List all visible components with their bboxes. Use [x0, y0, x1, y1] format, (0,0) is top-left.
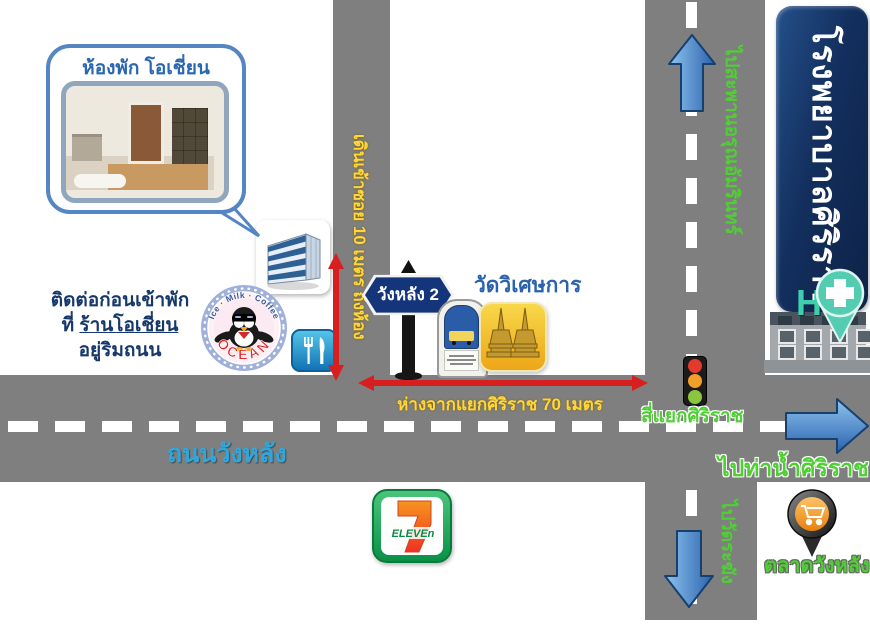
intersection-label: สี่แยกศิริราช [641, 401, 744, 431]
road-name-label: ถนนวังหลัง [167, 434, 287, 474]
street-sign-pole [402, 312, 415, 376]
directions-map: ห้องพัก โอเชี่ยน ติดต่อก่อนเข้าพัก ที่ ร… [0, 0, 870, 641]
photo-shelf [72, 134, 102, 161]
contact-note: ติดต่อก่อนเข้าพัก ที่ ร้านโอเชี่ยน อยู่ร… [38, 288, 202, 363]
speech-bubble: ห้องพัก โอเชี่ยน [46, 44, 246, 214]
distance-arrow-vertical [325, 252, 347, 382]
to-bridge-label: ไปสะพานอรุณอัมรินทร์ [720, 46, 741, 235]
up-arrow-icon [668, 34, 716, 112]
street-sign-finial [401, 260, 416, 273]
distance-label: ห่างจากแยกศิริราช 70 เมตร [370, 391, 630, 418]
shop-name: ร้านโอเชี่ยน [79, 315, 178, 336]
bus-stop-plaque [444, 350, 479, 371]
temple-icon [479, 302, 547, 372]
room-photo [61, 81, 229, 203]
photo-lockers [172, 108, 208, 164]
bus-stop-arch [444, 305, 479, 349]
down-arrow-icon [662, 528, 716, 608]
contact-line3: อยู่ริมถนน [38, 338, 202, 363]
contact-line1: ติดต่อก่อนเข้าพัก [38, 288, 202, 313]
to-pier-label: ไปท่าน้ำศิริราช [718, 451, 869, 487]
bus-pictogram [449, 331, 474, 341]
ocean-logo: Ice · Milk · Coffee OCEAN [199, 282, 289, 374]
room-title: ห้องพัก โอเชี่ยน [50, 53, 242, 83]
street-sign-label: วังหลัง 2 [362, 281, 454, 308]
photo-bedding [74, 174, 126, 188]
eleven-label: ELEVEn [392, 528, 435, 540]
to-wat-rakang-label: ไปวัดระฆัง [717, 500, 737, 584]
seven-glyph [398, 501, 431, 552]
traffic-light-icon [683, 356, 707, 406]
soi-walk-label: เดินเข้าซอย 10 เมตร ถึงห้อง [349, 134, 368, 340]
temple-label: วัดวิเศษการ [474, 269, 581, 302]
right-arrow-icon [785, 397, 869, 455]
photo-door [128, 102, 164, 164]
seven-eleven-icon: ELEVEn [372, 489, 452, 563]
contact-line2: ที่ ร้านโอเชี่ยน [38, 313, 202, 338]
market-label: ตลาดวังหลัง [764, 549, 870, 581]
hospital-pin-icon [812, 266, 868, 350]
hospital-building-base [764, 360, 870, 373]
